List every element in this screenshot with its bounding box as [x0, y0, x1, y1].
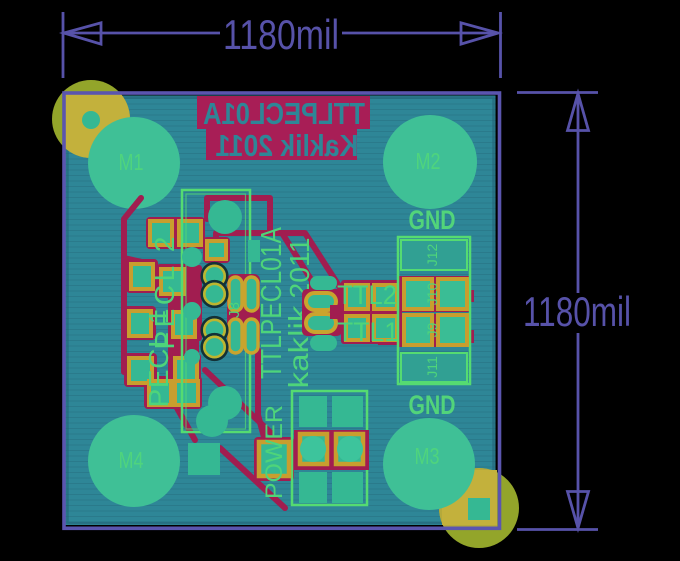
svg-text:M2: M2 — [416, 148, 441, 174]
svg-text:J9: J9 — [424, 322, 440, 337]
svg-text:TTL2: TTL2 — [337, 280, 397, 310]
svg-text:POWER: POWER — [261, 405, 288, 499]
svg-text:J11: J11 — [424, 356, 440, 378]
svg-text:TTLPECL01A: TTLPECL01A — [203, 96, 365, 131]
svg-text:M4: M4 — [119, 447, 144, 473]
svg-text:J12: J12 — [424, 244, 440, 267]
svg-text:PECL 1: PECL 1 — [143, 309, 174, 408]
svg-text:1180mil: 1180mil — [523, 288, 631, 335]
svg-text:J10: J10 — [424, 283, 440, 306]
svg-text:J8: J8 — [226, 302, 243, 318]
svg-text:GND: GND — [409, 390, 456, 420]
svg-text:1180mil: 1180mil — [223, 11, 339, 58]
svg-text:M3: M3 — [415, 443, 440, 469]
svg-text:Kaklik 2011: Kaklik 2011 — [216, 128, 359, 163]
svg-text:GND: GND — [409, 205, 456, 235]
svg-text:M1: M1 — [119, 149, 144, 175]
svg-text:TTL1: TTL1 — [337, 317, 399, 347]
